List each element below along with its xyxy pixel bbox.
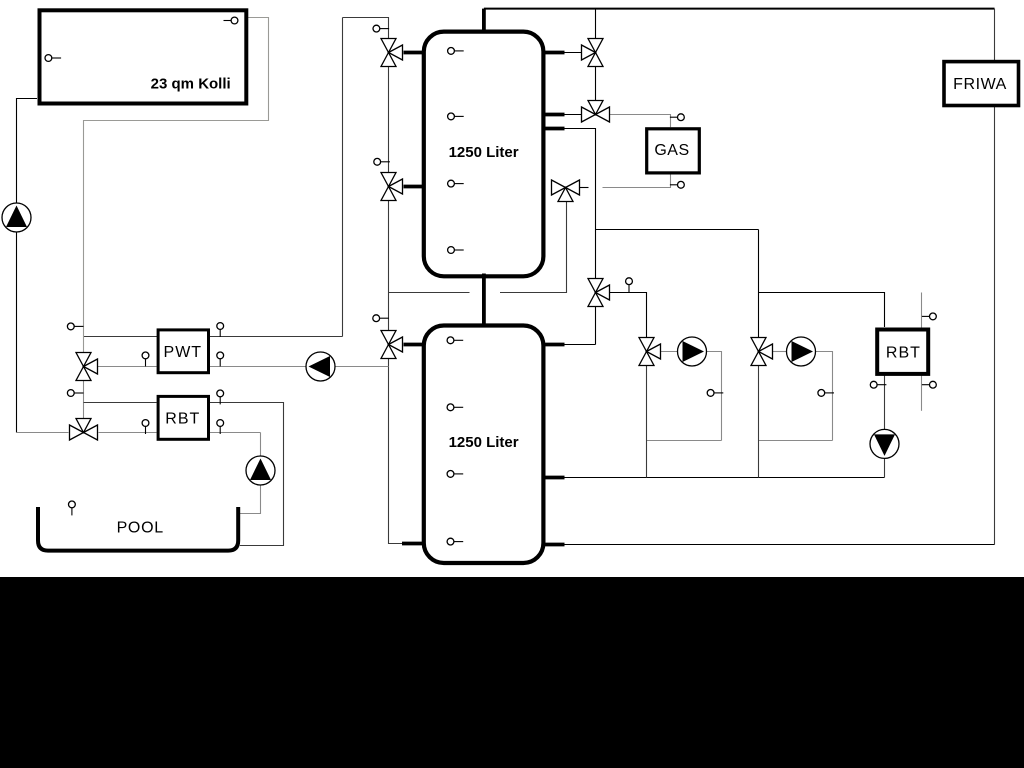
svg-text:RBT: RBT: [886, 344, 921, 361]
svg-text:1250 Liter: 1250 Liter: [449, 144, 519, 161]
svg-text:PWT: PWT: [164, 344, 203, 361]
svg-text:POOL: POOL: [117, 519, 164, 536]
svg-text:FRIWA: FRIWA: [953, 76, 1007, 93]
svg-text:1250 Liter: 1250 Liter: [449, 434, 519, 451]
svg-text:GAS: GAS: [654, 142, 689, 159]
svg-text:RBT: RBT: [165, 411, 200, 428]
svg-text:23 qm Kolli: 23 qm Kolli: [151, 76, 231, 93]
